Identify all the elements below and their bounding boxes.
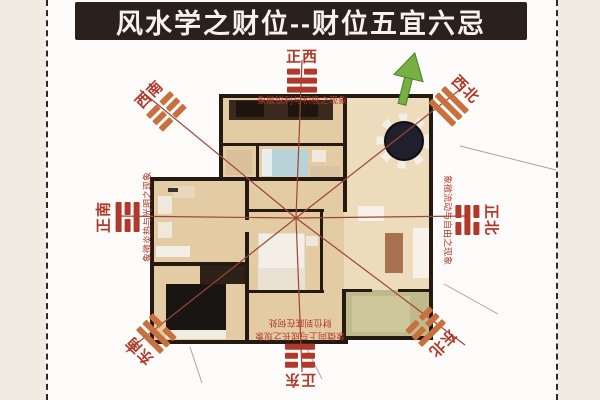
cabinet-icon: [156, 246, 190, 257]
desk-icon: [158, 222, 172, 238]
round-table-icon: [380, 117, 428, 165]
desk-icon: [158, 196, 172, 214]
floor-plan: [0, 0, 600, 400]
piano-icon: [166, 284, 226, 330]
pillow-icon: [262, 149, 272, 176]
sofa-icon: [413, 228, 431, 278]
nightstand-icon: [312, 150, 326, 162]
coffee-table-icon: [385, 233, 403, 273]
chair-icon: [358, 206, 384, 221]
nightstand-icon: [306, 236, 318, 246]
laptop-icon: [168, 188, 178, 192]
cabinet-icon: [288, 101, 318, 117]
bench-icon: [166, 330, 226, 339]
balcony-mat: [352, 296, 410, 332]
dresser-icon: [310, 166, 340, 177]
title-bar: 风水学之财位--财位五宜六忌: [75, 2, 527, 40]
poster-title: 风水学之财位--财位五宜六忌: [116, 2, 486, 41]
cabinet-icon: [236, 101, 264, 117]
